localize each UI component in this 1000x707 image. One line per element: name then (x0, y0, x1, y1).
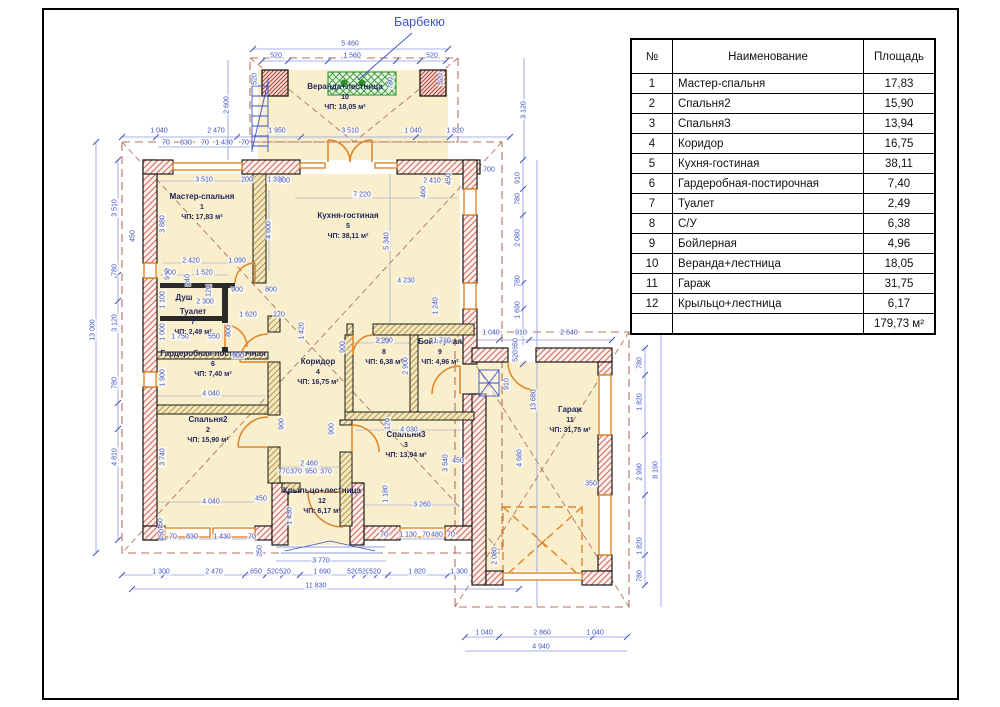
total-area: 179,73 м² (864, 314, 936, 335)
col-number-header: № (631, 39, 673, 74)
area-table-total-row: 179,73 м² (631, 314, 935, 335)
table-row: 10Веранда+лестница18,05 (631, 254, 935, 274)
barbecue-label: Барбекю (394, 15, 445, 29)
table-row: 4Коридор16,75 (631, 134, 935, 154)
area-table: № Наименование Площадь 1Мастер-спальня17… (630, 38, 936, 335)
table-row: 12Крыльцо+лестница6,17 (631, 294, 935, 314)
table-row: 6Гардеробная-постирочная7,40 (631, 174, 935, 194)
col-name-header: Наименование (673, 39, 864, 74)
table-row: 9Бойлерная4,96 (631, 234, 935, 254)
area-table-header: № Наименование Площадь (631, 39, 935, 74)
vestibule-stairs (479, 370, 499, 396)
table-row: 2Спальня215,90 (631, 94, 935, 114)
drawing-sheet: Мастер-спальня1ЧП: 17,83 м²Кухня-гостина… (0, 0, 1000, 707)
table-row: 7Туалет2,49 (631, 194, 935, 214)
table-row: 8С/У6,38 (631, 214, 935, 234)
table-row: 1Мастер-спальня17,83 (631, 74, 935, 94)
table-row: 11Гараж31,75 (631, 274, 935, 294)
table-row: 5Кухня-гостиная38,11 (631, 154, 935, 174)
table-row: 3Спальня313,94 (631, 114, 935, 134)
col-area-header: Площадь (864, 39, 936, 74)
